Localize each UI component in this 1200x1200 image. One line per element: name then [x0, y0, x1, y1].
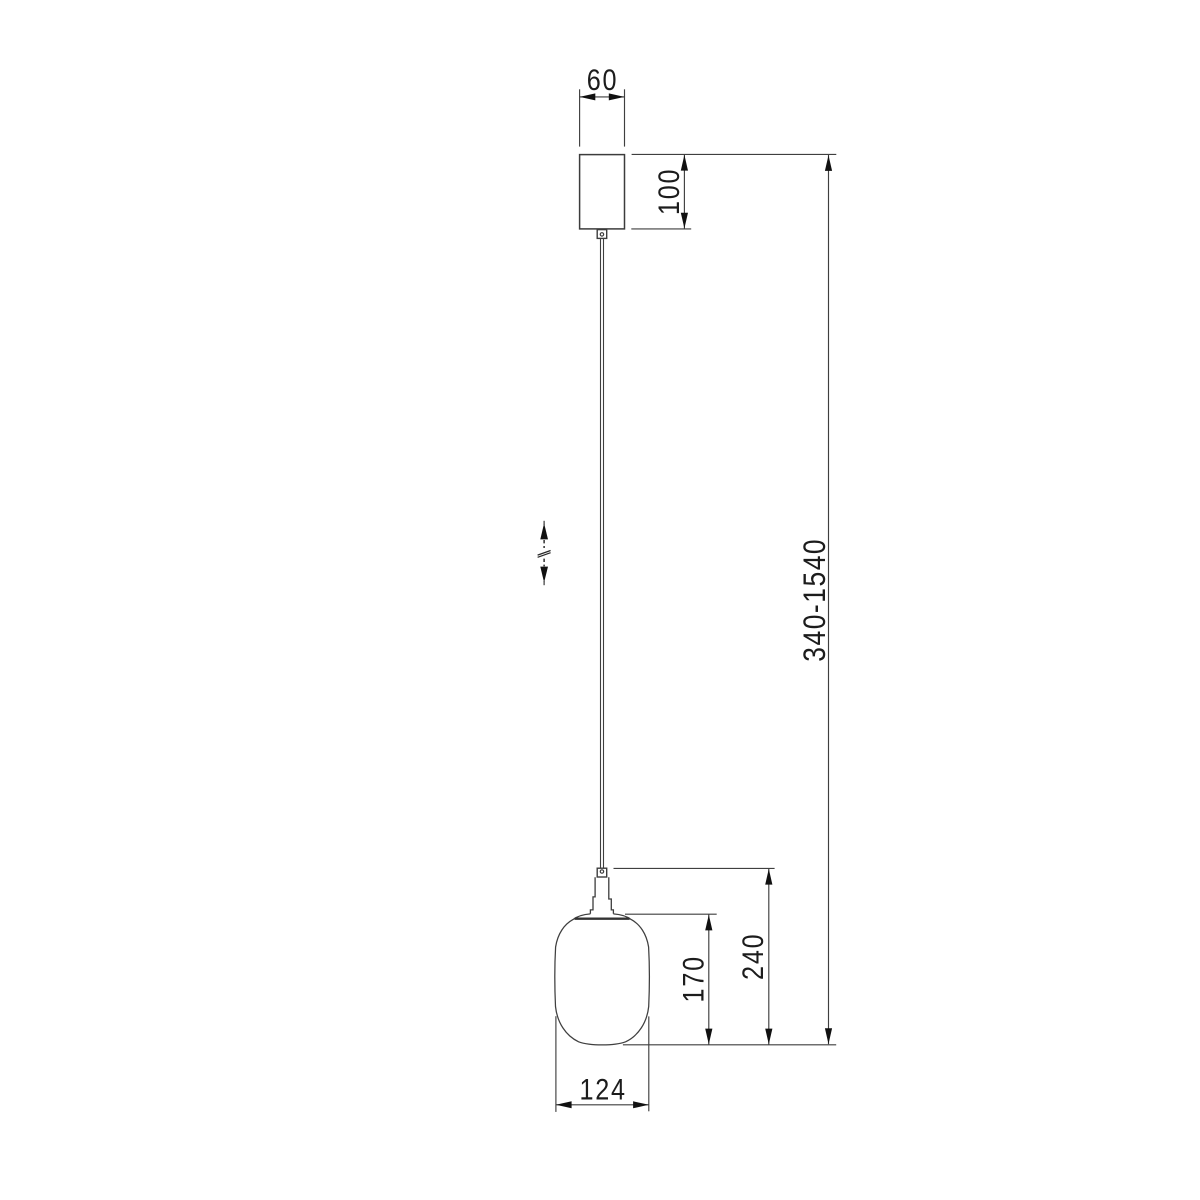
svg-text:240: 240 — [736, 933, 770, 980]
svg-text:340-1540: 340-1540 — [798, 538, 833, 662]
svg-text:100: 100 — [652, 168, 686, 215]
svg-text:170: 170 — [676, 955, 710, 1002]
svg-text:124: 124 — [579, 1072, 626, 1106]
svg-text:60: 60 — [587, 63, 619, 97]
